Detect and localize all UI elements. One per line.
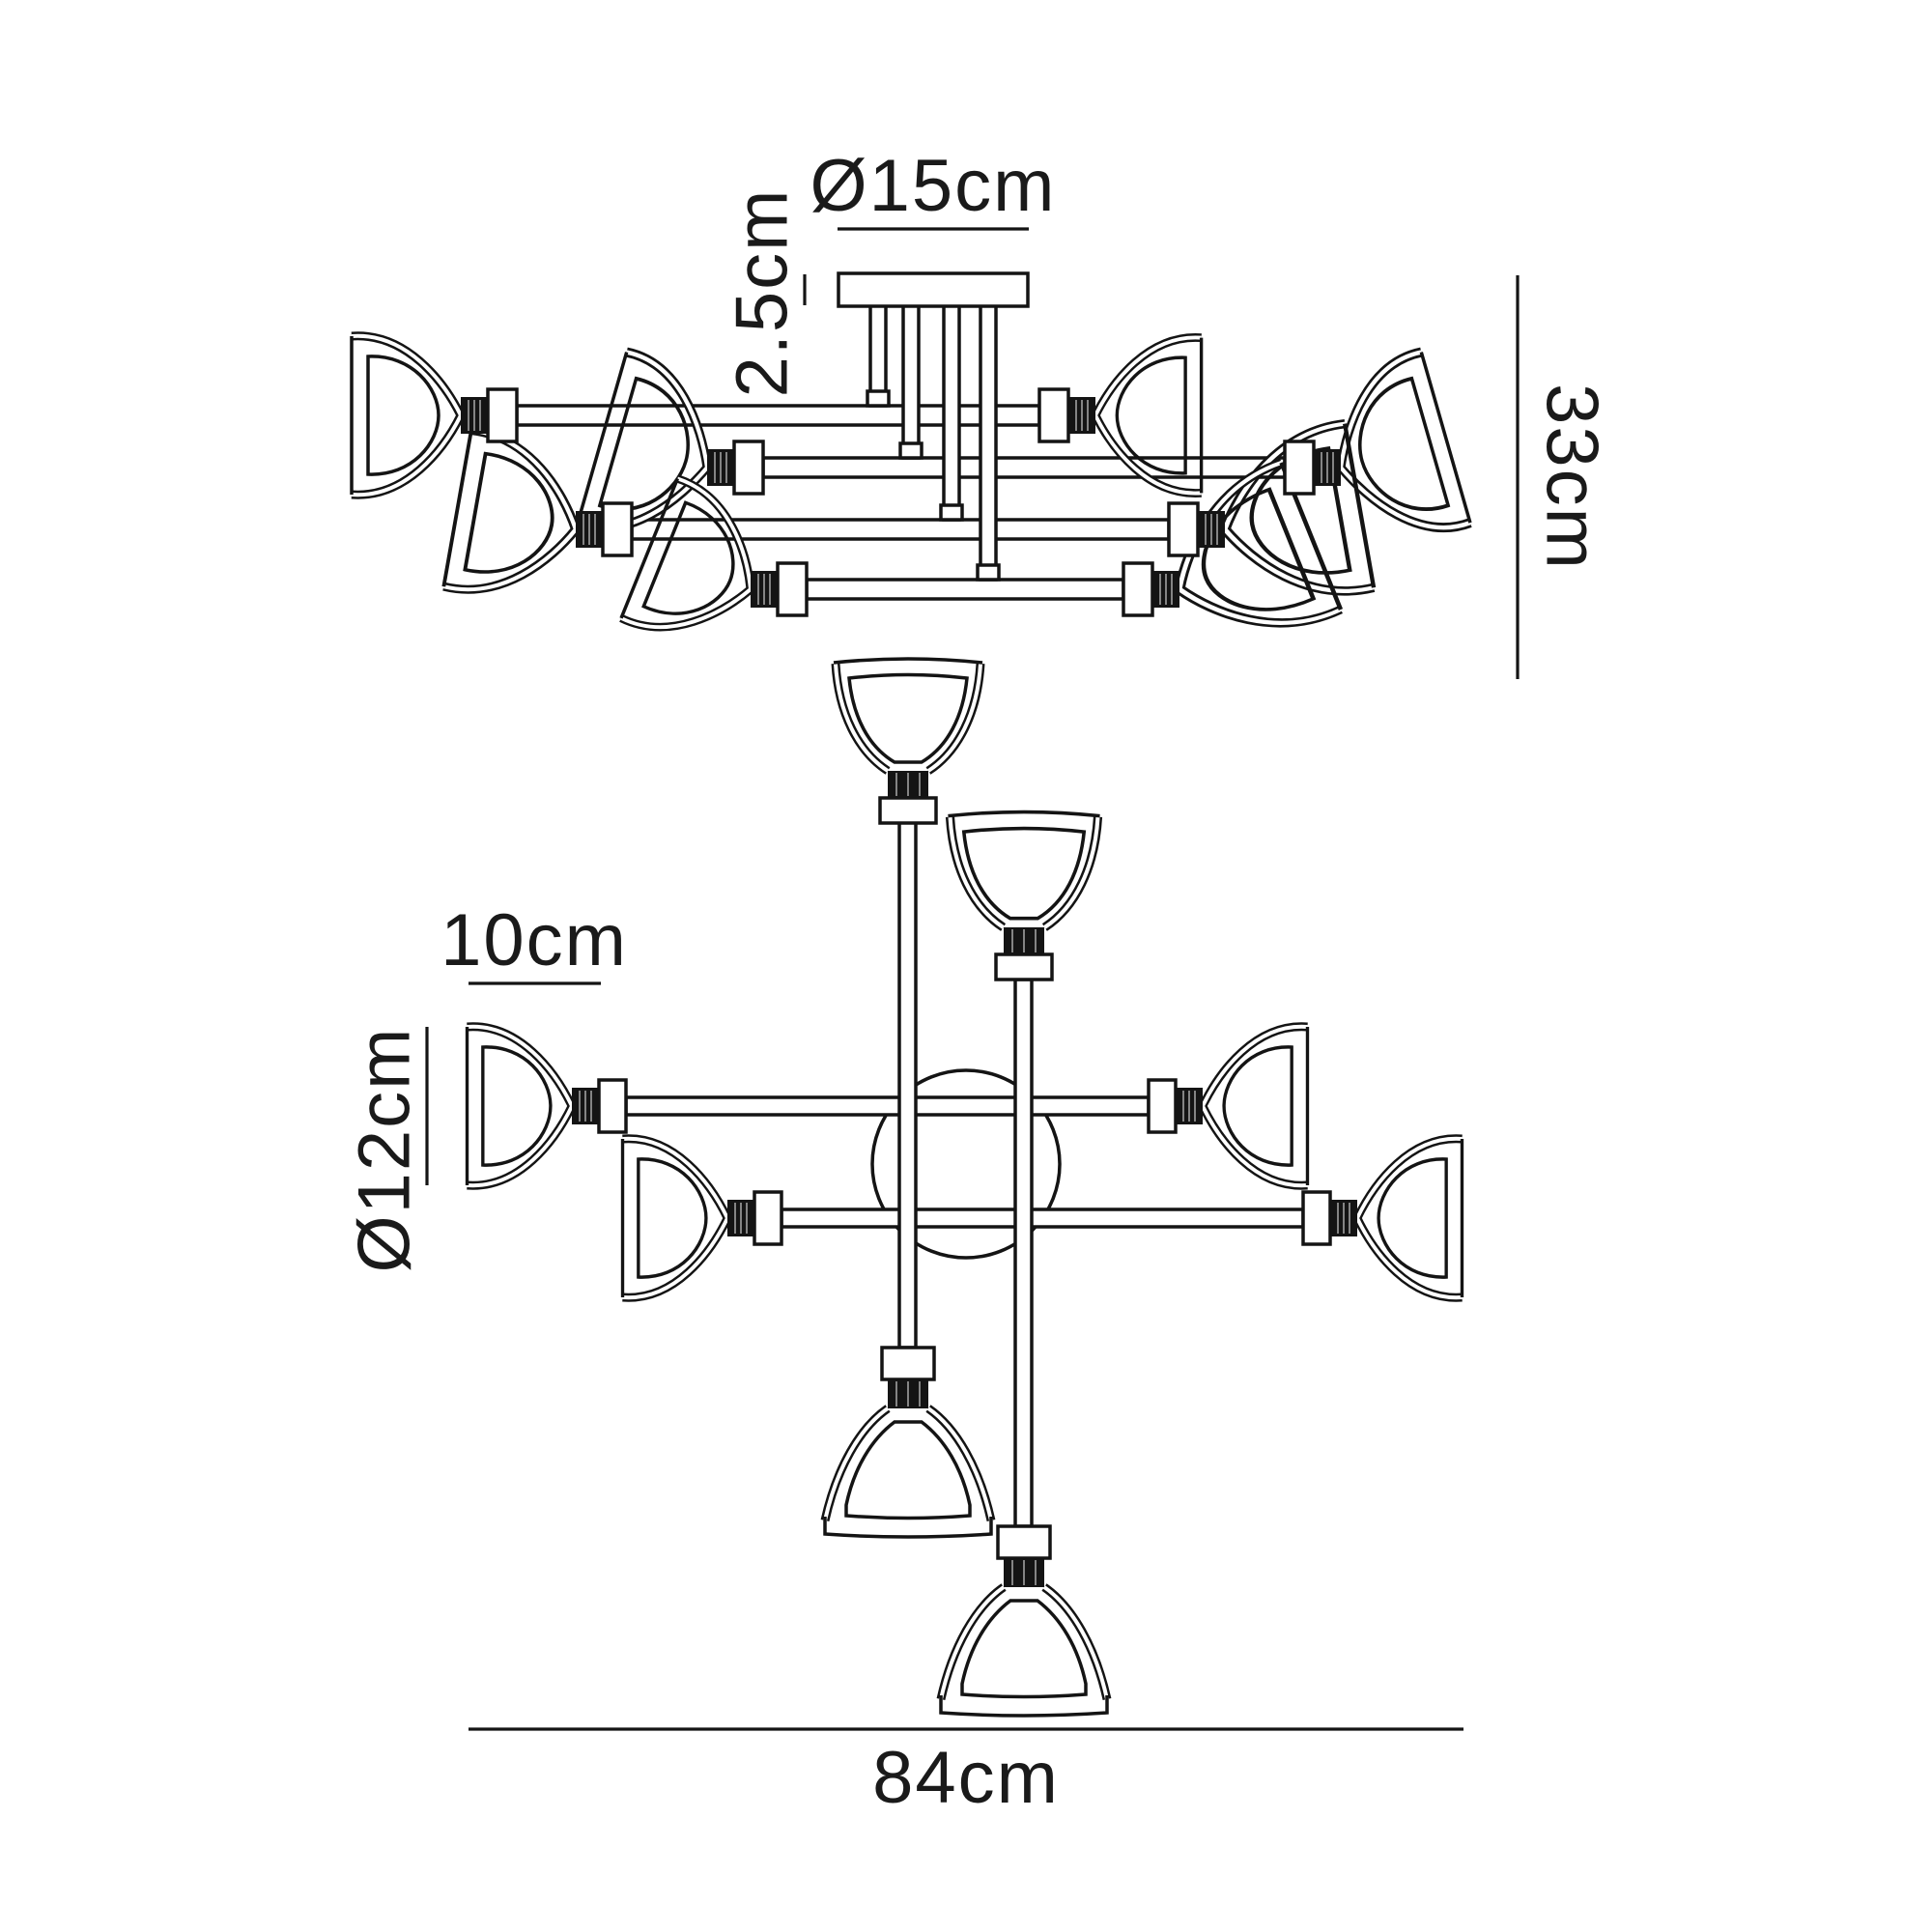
dim-label-fixture-height: 33cm (1531, 384, 1613, 571)
rod-joint-3 (941, 505, 962, 520)
shade-plan-left-2 (623, 1139, 727, 1297)
shade-plan-right-2 (1357, 1139, 1462, 1297)
shade-plan-down-1 (825, 1408, 991, 1537)
dim-label-canopy-depth: 2.5cm (722, 188, 804, 398)
dimension-drawing: Ø15cm 2.5cm 33cm 10cm Ø12cm 84cm (0, 0, 1932, 1932)
holder-side-left-3 (576, 503, 632, 555)
plan-arm-west-east-upper (626, 1097, 1149, 1115)
dimension-annotations: Ø15cm 2.5cm 33cm 10cm Ø12cm 84cm (344, 145, 1613, 1819)
holder-side-right-3 (1169, 503, 1225, 555)
holder-plan-right-2 (1303, 1192, 1357, 1244)
plan-arm-north-south-left (899, 821, 916, 1348)
dim-label-shade-depth: 10cm (440, 899, 628, 981)
drop-rod-2 (903, 304, 919, 458)
side-elevation-view (352, 273, 1470, 663)
holder-plan-left-2 (727, 1192, 781, 1244)
holder-side-right-1 (1039, 389, 1095, 441)
holder-plan-up-2 (996, 927, 1052, 980)
shade-plan-up-1 (834, 659, 982, 771)
rod-joint-1 (867, 391, 889, 406)
dim-label-canopy-diameter: Ø15cm (810, 145, 1057, 227)
arm-level-1 (517, 406, 1039, 425)
rod-joint-4 (978, 565, 999, 580)
holder-side-right-2 (1285, 441, 1341, 494)
drop-rod-4 (980, 304, 996, 580)
holder-side-left-4 (751, 563, 807, 615)
ceiling-plate (838, 273, 1028, 306)
shade-side-left-1 (352, 336, 461, 495)
holder-plan-left-1 (572, 1080, 626, 1132)
shade-plan-left-1 (468, 1027, 572, 1185)
shade-plan-right-1 (1203, 1027, 1307, 1185)
holder-plan-down-2 (998, 1526, 1050, 1587)
arm-level-3 (632, 520, 1169, 539)
drop-rod-3 (944, 304, 959, 520)
holder-side-right-4 (1123, 563, 1179, 615)
holder-side-left-1 (461, 389, 517, 441)
holder-plan-right-1 (1149, 1080, 1203, 1132)
shade-plan-up-2 (948, 812, 1099, 927)
shade-plan-down-2 (941, 1587, 1107, 1716)
plan-arm-west-east-lower (781, 1209, 1303, 1227)
dim-label-fixture-width: 84cm (872, 1737, 1060, 1819)
arm-level-2 (763, 458, 1285, 477)
holder-plan-up-1 (880, 771, 936, 823)
rod-joint-2 (900, 443, 922, 458)
shade-side-left-3 (443, 430, 589, 608)
holder-plan-down-1 (882, 1348, 934, 1408)
dim-label-shade-diameter: Ø12cm (344, 1027, 426, 1273)
holder-side-left-2 (707, 441, 763, 494)
arm-level-4 (807, 580, 1123, 599)
plan-arm-north-south-right (1015, 980, 1032, 1526)
plan-view (468, 659, 1463, 1716)
diagram-canvas: Ø15cm 2.5cm 33cm 10cm Ø12cm 84cm (0, 0, 1932, 1932)
